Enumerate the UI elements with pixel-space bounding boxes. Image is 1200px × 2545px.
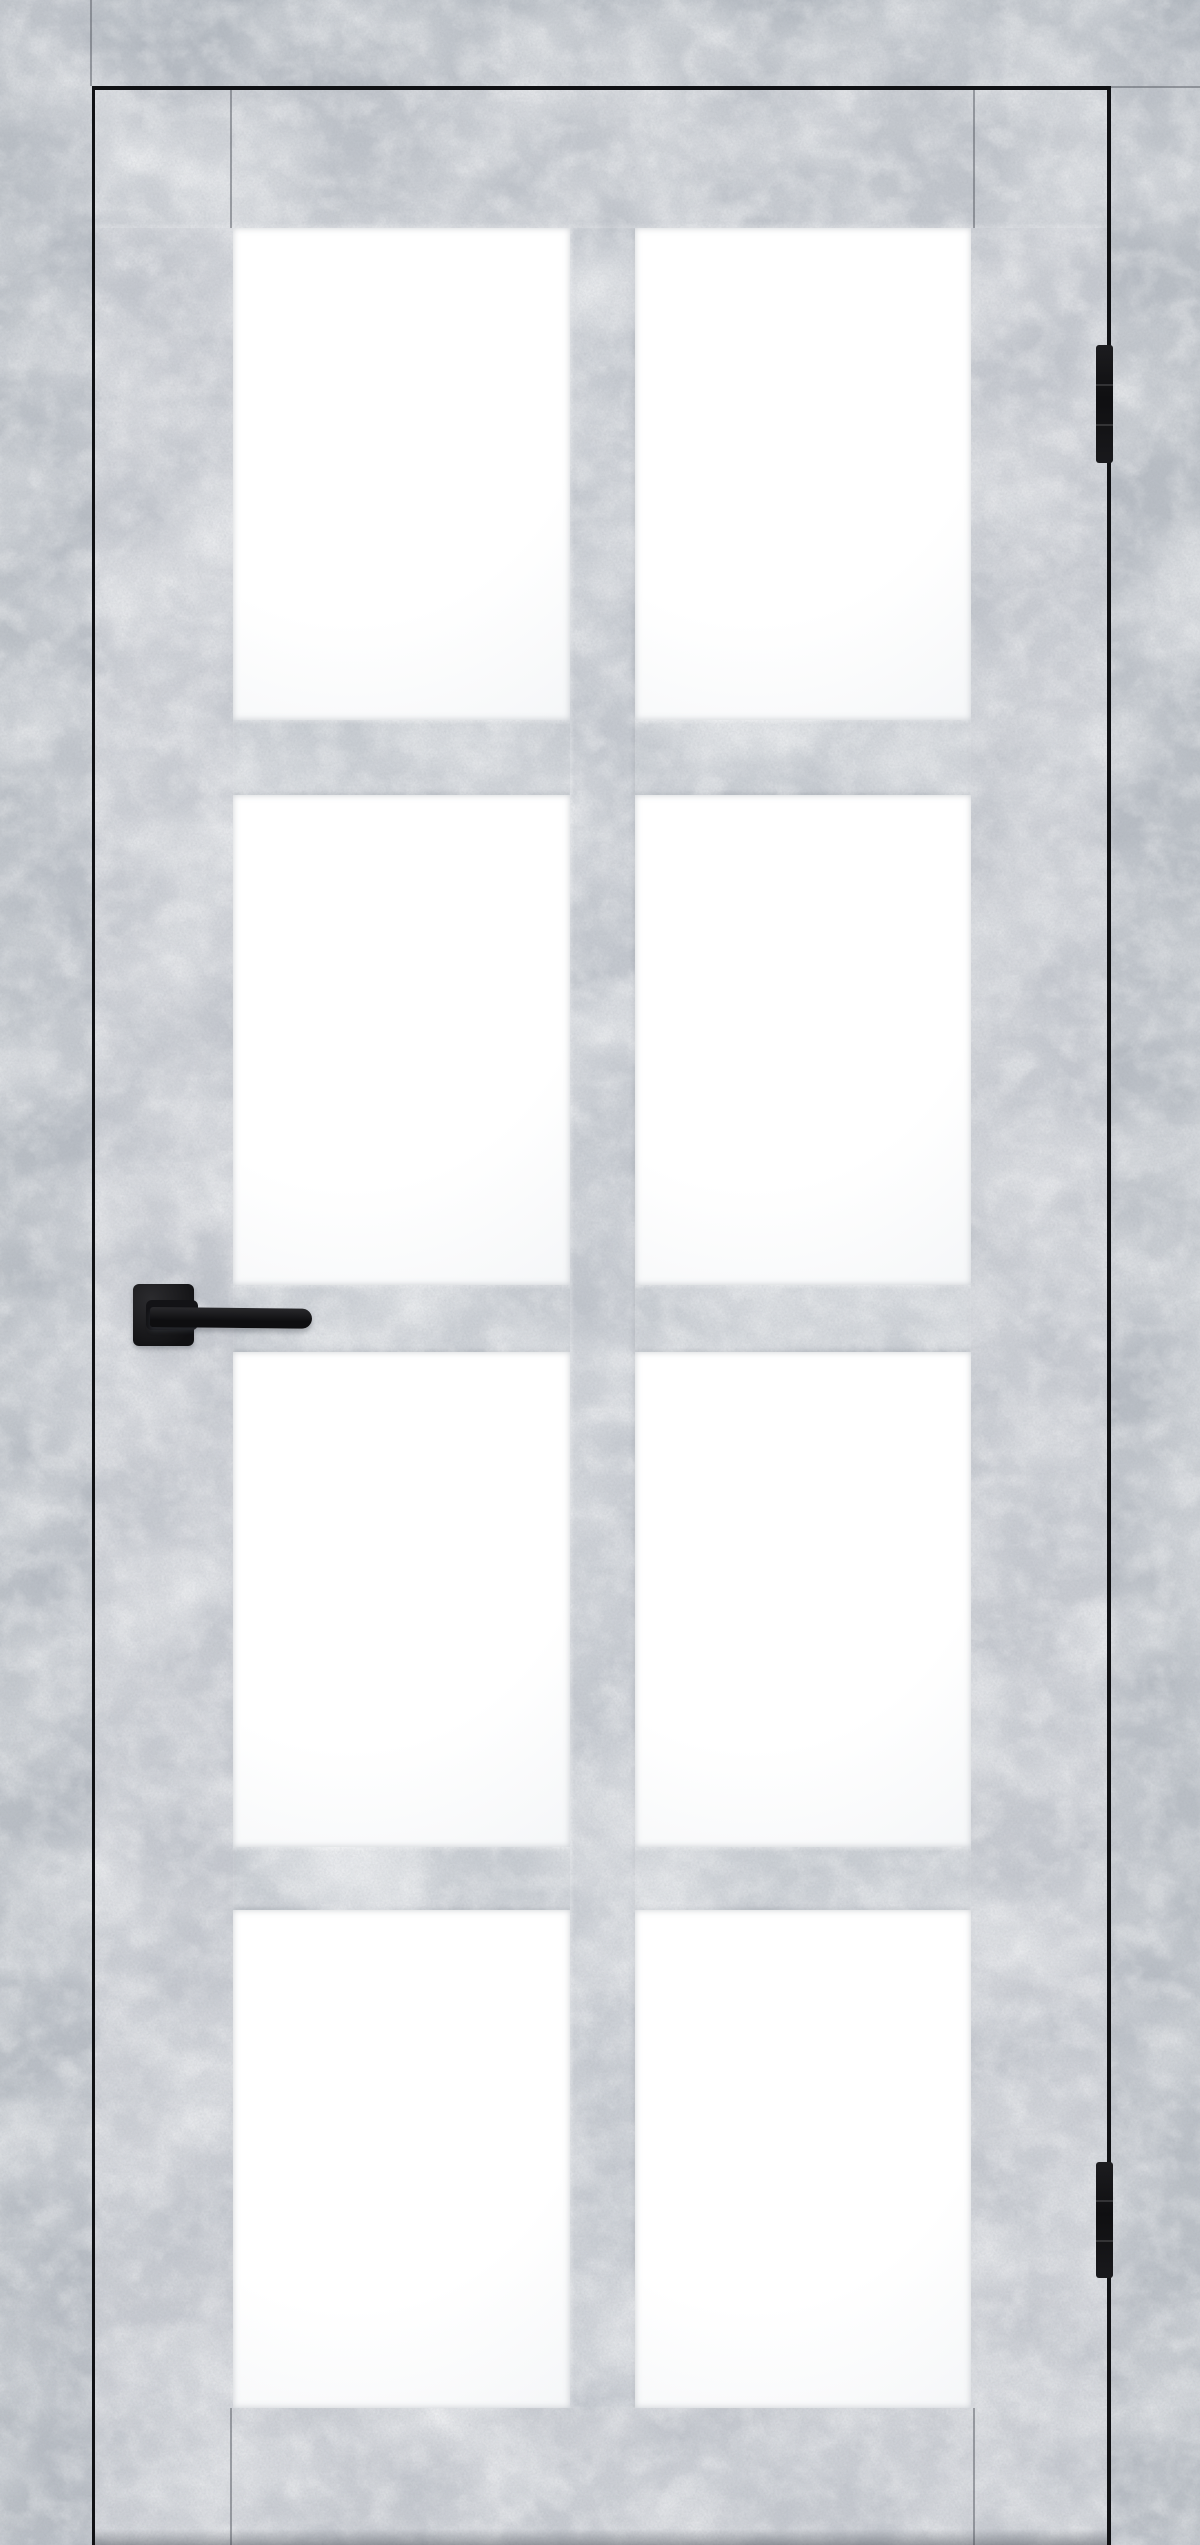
door-gap-right (1107, 90, 1111, 2545)
floor-shadow (95, 2529, 1107, 2545)
door-gap-left (92, 90, 95, 2545)
frame-casing-right (1111, 86, 1200, 2545)
door-center-muntin (570, 228, 635, 2408)
handle-lever (150, 1307, 312, 1329)
frame-casing-left (0, 0, 92, 2545)
door-product-photo (0, 0, 1200, 2545)
frame-casing-top (0, 0, 1200, 86)
door-top-rail (95, 90, 1107, 228)
door-gap-top (92, 86, 1111, 90)
